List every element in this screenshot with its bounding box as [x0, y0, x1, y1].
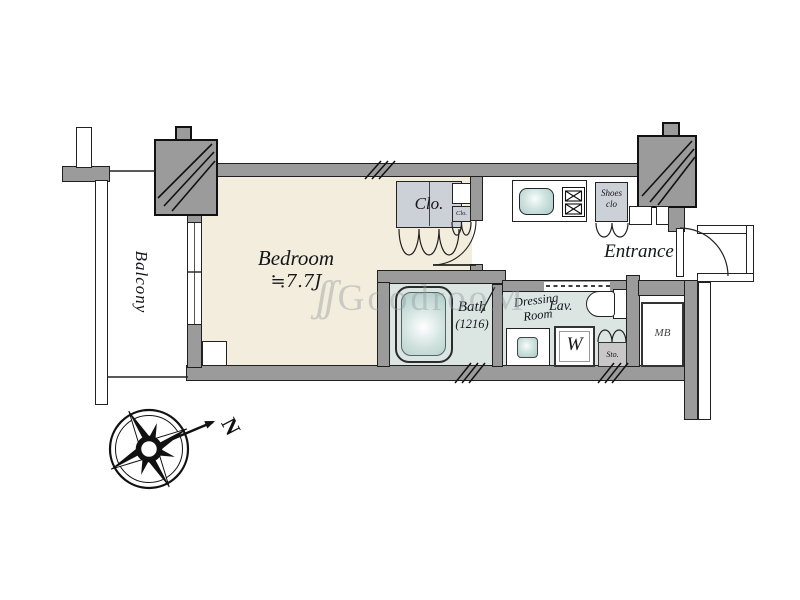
balcony-label: Balcony	[131, 251, 151, 314]
wall-mb-right	[684, 280, 698, 420]
watermark-text: GoodrooM	[338, 277, 526, 320]
pillar-top-right-stub	[662, 122, 680, 137]
corner-pipe-box	[202, 341, 227, 366]
watermark: ʃʃ GoodrooM	[316, 272, 526, 321]
outer-wall-mb	[698, 282, 711, 420]
bedroom-name: Bedroom	[216, 246, 376, 271]
lavatory-label: Lav.	[549, 299, 572, 316]
pillar-top-right	[637, 135, 697, 208]
outer-wall-bottom	[697, 273, 754, 282]
entrance-step-box	[629, 206, 652, 225]
entrance-step-box	[656, 206, 669, 225]
watermark-logo-icon: ʃʃ	[316, 272, 333, 321]
balcony-post	[76, 127, 92, 168]
entrance-label: Entrance	[598, 241, 680, 263]
wall-partition-upper	[470, 176, 483, 221]
wall-bottom	[186, 365, 699, 381]
toilet-tank	[613, 289, 627, 319]
shoes-line2: clo	[595, 199, 628, 210]
floor-plan: Balcony Bedroom ≒7.7J Clo. Clo. Bath (12…	[0, 0, 800, 600]
shoes-line1: Shoes	[595, 188, 628, 199]
washer-label: W	[554, 334, 595, 356]
window	[187, 222, 202, 325]
stove-icon	[562, 187, 585, 217]
meter-box-label: MB	[641, 327, 684, 340]
kitchen-sink-icon	[519, 188, 554, 215]
compass-center-ring	[139, 439, 160, 460]
compass-rose: N	[91, 391, 246, 507]
north-label: N	[216, 413, 246, 439]
small-closet-label: Clo.	[452, 210, 471, 218]
wall-segment	[187, 322, 202, 368]
entrance-door-arc	[680, 228, 728, 276]
storage-label: Sto.	[598, 350, 627, 359]
pillar-top-left-stub	[175, 126, 192, 141]
balcony-railing	[95, 180, 108, 405]
toilet-icon	[586, 291, 615, 317]
pillar-top-left	[154, 139, 218, 216]
north-arrow	[163, 421, 215, 443]
sliding-door-gap	[544, 282, 610, 291]
outer-wall-right	[746, 225, 754, 276]
wall-top	[204, 163, 646, 177]
washbasin-icon	[517, 337, 538, 358]
shoes-closet-label: Shoes clo	[595, 188, 628, 209]
